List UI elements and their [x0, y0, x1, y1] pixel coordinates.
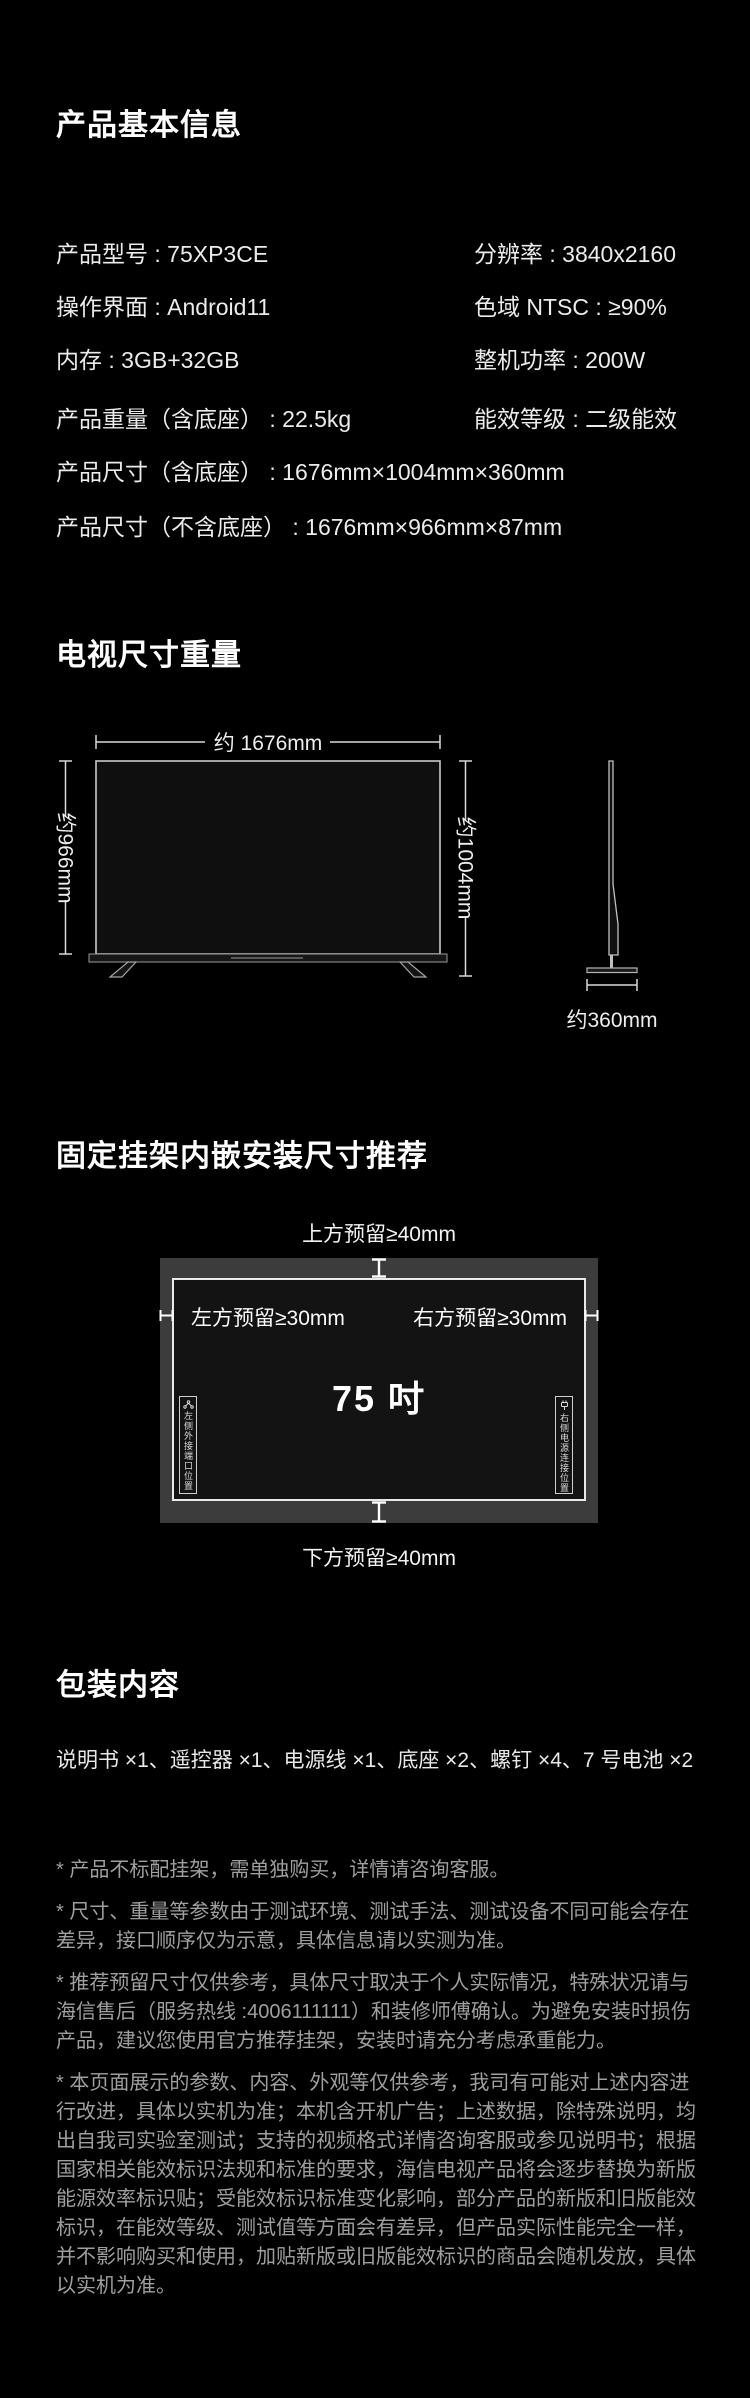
spec-row: 产品型号 : 75XP3CE 分辨率 : 3840x2160 — [56, 235, 740, 265]
section-title-mount: 固定挂架内嵌安装尺寸推荐 — [56, 1131, 428, 1175]
spec-row: 产品尺寸（不含底座） : 1676mm×966mm×87mm — [56, 508, 740, 538]
colon: : — [263, 459, 282, 485]
footnote-no-bracket-included: * 产品不标配挂架，需单独购买，详情请咨询客服。 — [56, 1856, 704, 1885]
spec-resolution: 分辨率 : 3840x2160 — [474, 235, 676, 269]
spec-memory: 内存 : 3GB+32GB — [56, 341, 239, 375]
package-contents-text: 说明书 ×1、遥控器 ×1、电源线 ×1、底座 ×2、螺钉 ×4、7 号电池 ×… — [56, 1744, 693, 1774]
tv-size-75-inch-label: 75 吋 — [160, 1370, 598, 1422]
spec-size-with-base: 产品尺寸（含底座） : 1676mm×1004mm×360mm — [56, 453, 565, 487]
left-ports-location-label: 左侧外接端口位置 — [183, 1411, 193, 1491]
section-title-tv-size: 电视尺寸重量 — [56, 630, 242, 674]
spec-size-without-base: 产品尺寸（不含底座） : 1676mm×966mm×87mm — [56, 508, 562, 542]
mount-top-clearance-label: 上方预留≥40mm — [160, 1218, 598, 1248]
spec-row: 产品尺寸（含底座） : 1676mm×1004mm×360mm — [56, 453, 740, 483]
mount-right-clearance-label: 右方预留≥30mm — [413, 1302, 567, 1332]
tv-left-foot — [110, 962, 136, 977]
tv-width-label: 约 1676mm — [214, 732, 323, 755]
depth-dimension-line — [587, 979, 637, 991]
right-power-location-label: 右侧电源连接位置 — [559, 1413, 569, 1493]
spec-product-model: 产品型号 : 75XP3CE — [56, 235, 268, 269]
tv-side-view-base-plate — [587, 968, 637, 973]
spec-power: 整机功率 : 200W — [474, 341, 645, 375]
colon: : — [589, 294, 608, 320]
tv-dimensions-diagram: 约 1676mm 约966mm 约1004mm 约360mm — [0, 700, 750, 1100]
tv-height-with-base-label: 约1004mm — [454, 817, 477, 920]
spec-row: 产品重量（含底座） : 22.5kg 能效等级 : 二级能效 — [56, 400, 740, 430]
left-ports-location-box: 左侧外接端口位置 — [179, 1396, 197, 1494]
spec-weight: 产品重量（含底座） : 22.5kg — [56, 400, 351, 434]
colon: : — [543, 241, 562, 267]
tv-depth-label: 约360mm — [566, 1009, 657, 1032]
colon: : — [102, 347, 121, 373]
footnote-measurement-variance: * 尺寸、重量等参数由于测试环境、测试手法、测试设备不同可能会存在差异，接口顺序… — [56, 1898, 704, 1956]
spec-row: 操作界面 : Android11 色域 NTSC : ≥90% — [56, 288, 740, 318]
colon: : — [566, 406, 585, 432]
footnotes: * 产品不标配挂架，需单独购买，详情请咨询客服。 * 尺寸、重量等参数由于测试环… — [56, 1856, 704, 2314]
power-plug-icon — [560, 1400, 569, 1411]
top-gap-marker-icon — [369, 1258, 389, 1278]
tv-right-foot — [400, 962, 426, 977]
colon: : — [566, 347, 585, 373]
mount-recess-diagram: 左方预留≥30mm 右方预留≥30mm 75 吋 左侧外接端口位置 右侧电源连接… — [160, 1258, 598, 1523]
spec-energy-rating: 能效等级 : 二级能效 — [474, 400, 677, 434]
colon: : — [148, 294, 167, 320]
footnote-clearance-reference: * 推荐预留尺寸仅供参考，具体尺寸取决于个人实际情况，特殊状况请与海信售后（服务… — [56, 1969, 704, 2056]
ports-icon — [183, 1400, 194, 1409]
spec-os: 操作界面 : Android11 — [56, 288, 270, 322]
section-title-basic-info: 产品基本信息 — [56, 100, 242, 144]
footnote-general-disclaimer: * 本页面展示的参数、内容、外观等仅供参考，我司有可能对上述内容进行改进，具体以… — [56, 2069, 704, 2301]
spec-color-gamut: 色域 NTSC : ≥90% — [474, 288, 667, 322]
left-gap-marker-icon — [159, 1308, 174, 1323]
colon: : — [148, 241, 167, 267]
mount-left-clearance-label: 左方预留≥30mm — [191, 1302, 345, 1332]
right-gap-marker-icon — [584, 1308, 599, 1323]
right-power-location-box: 右侧电源连接位置 — [555, 1396, 573, 1494]
tv-front-screen — [96, 761, 440, 954]
colon: : — [263, 406, 282, 432]
colon: : — [286, 514, 305, 540]
spec-row: 内存 : 3GB+32GB 整机功率 : 200W — [56, 341, 740, 371]
mount-bottom-clearance-label: 下方预留≥40mm — [160, 1542, 598, 1572]
section-title-package: 包装内容 — [56, 1660, 180, 1704]
tv-side-view-panel — [609, 761, 618, 955]
bottom-gap-marker-icon — [369, 1501, 389, 1523]
product-spec-page: 产品基本信息 产品型号 : 75XP3CE 分辨率 : 3840x2160 操作… — [0, 0, 750, 2398]
tv-height-no-base-label: 约966mm — [54, 812, 77, 903]
